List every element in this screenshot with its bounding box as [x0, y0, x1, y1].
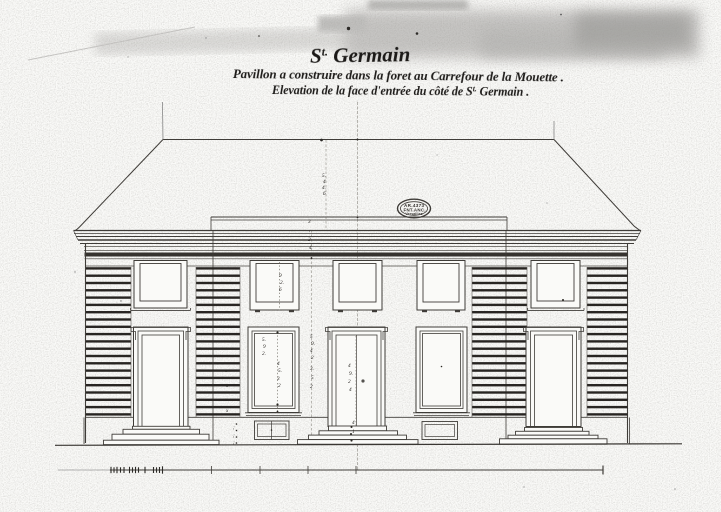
svg-text:4: 4	[349, 386, 352, 393]
svg-text:3: 3	[277, 376, 280, 382]
svg-text:4: 4	[277, 360, 280, 367]
svg-text:,: ,	[309, 227, 310, 233]
svg-text:9.: 9.	[311, 341, 315, 347]
svg-text:2.: 2.	[262, 351, 266, 357]
svg-text:5: 5	[311, 375, 314, 381]
svg-text:4: 4	[310, 347, 313, 354]
svg-text:5: 5	[310, 334, 313, 340]
svg-text:;: ;	[233, 433, 235, 439]
svg-text:2.: 2.	[280, 280, 284, 286]
svg-text:2: 2	[311, 355, 314, 361]
svg-text:;: ;	[233, 440, 235, 446]
svg-text:5.: 5.	[262, 337, 266, 343]
svg-text:9: 9	[279, 273, 282, 279]
svg-text:9: 9	[263, 344, 266, 350]
svg-text:3.: 3.	[310, 366, 314, 372]
svg-text:2: 2	[348, 379, 351, 385]
svg-text:6: 6	[323, 191, 326, 197]
svg-text:6: 6	[279, 287, 282, 293]
svg-text:4: 4	[309, 244, 312, 251]
svg-text:4: 4	[352, 419, 355, 426]
svg-text:2: 2	[310, 384, 313, 390]
svg-text:9.: 9.	[349, 371, 353, 377]
svg-text:1: 1	[352, 429, 355, 435]
svg-text:;: ;	[233, 425, 235, 431]
svg-text:5.: 5.	[278, 368, 282, 374]
svg-text:4.: 4.	[322, 184, 326, 191]
svg-text:4: 4	[323, 178, 326, 185]
svg-text:2: 2	[308, 237, 311, 243]
svg-text:3: 3	[308, 219, 311, 225]
svg-text:4: 4	[348, 362, 351, 369]
svg-text:Versailles: Versailles	[406, 212, 423, 216]
svg-text:2: 2	[278, 383, 281, 389]
